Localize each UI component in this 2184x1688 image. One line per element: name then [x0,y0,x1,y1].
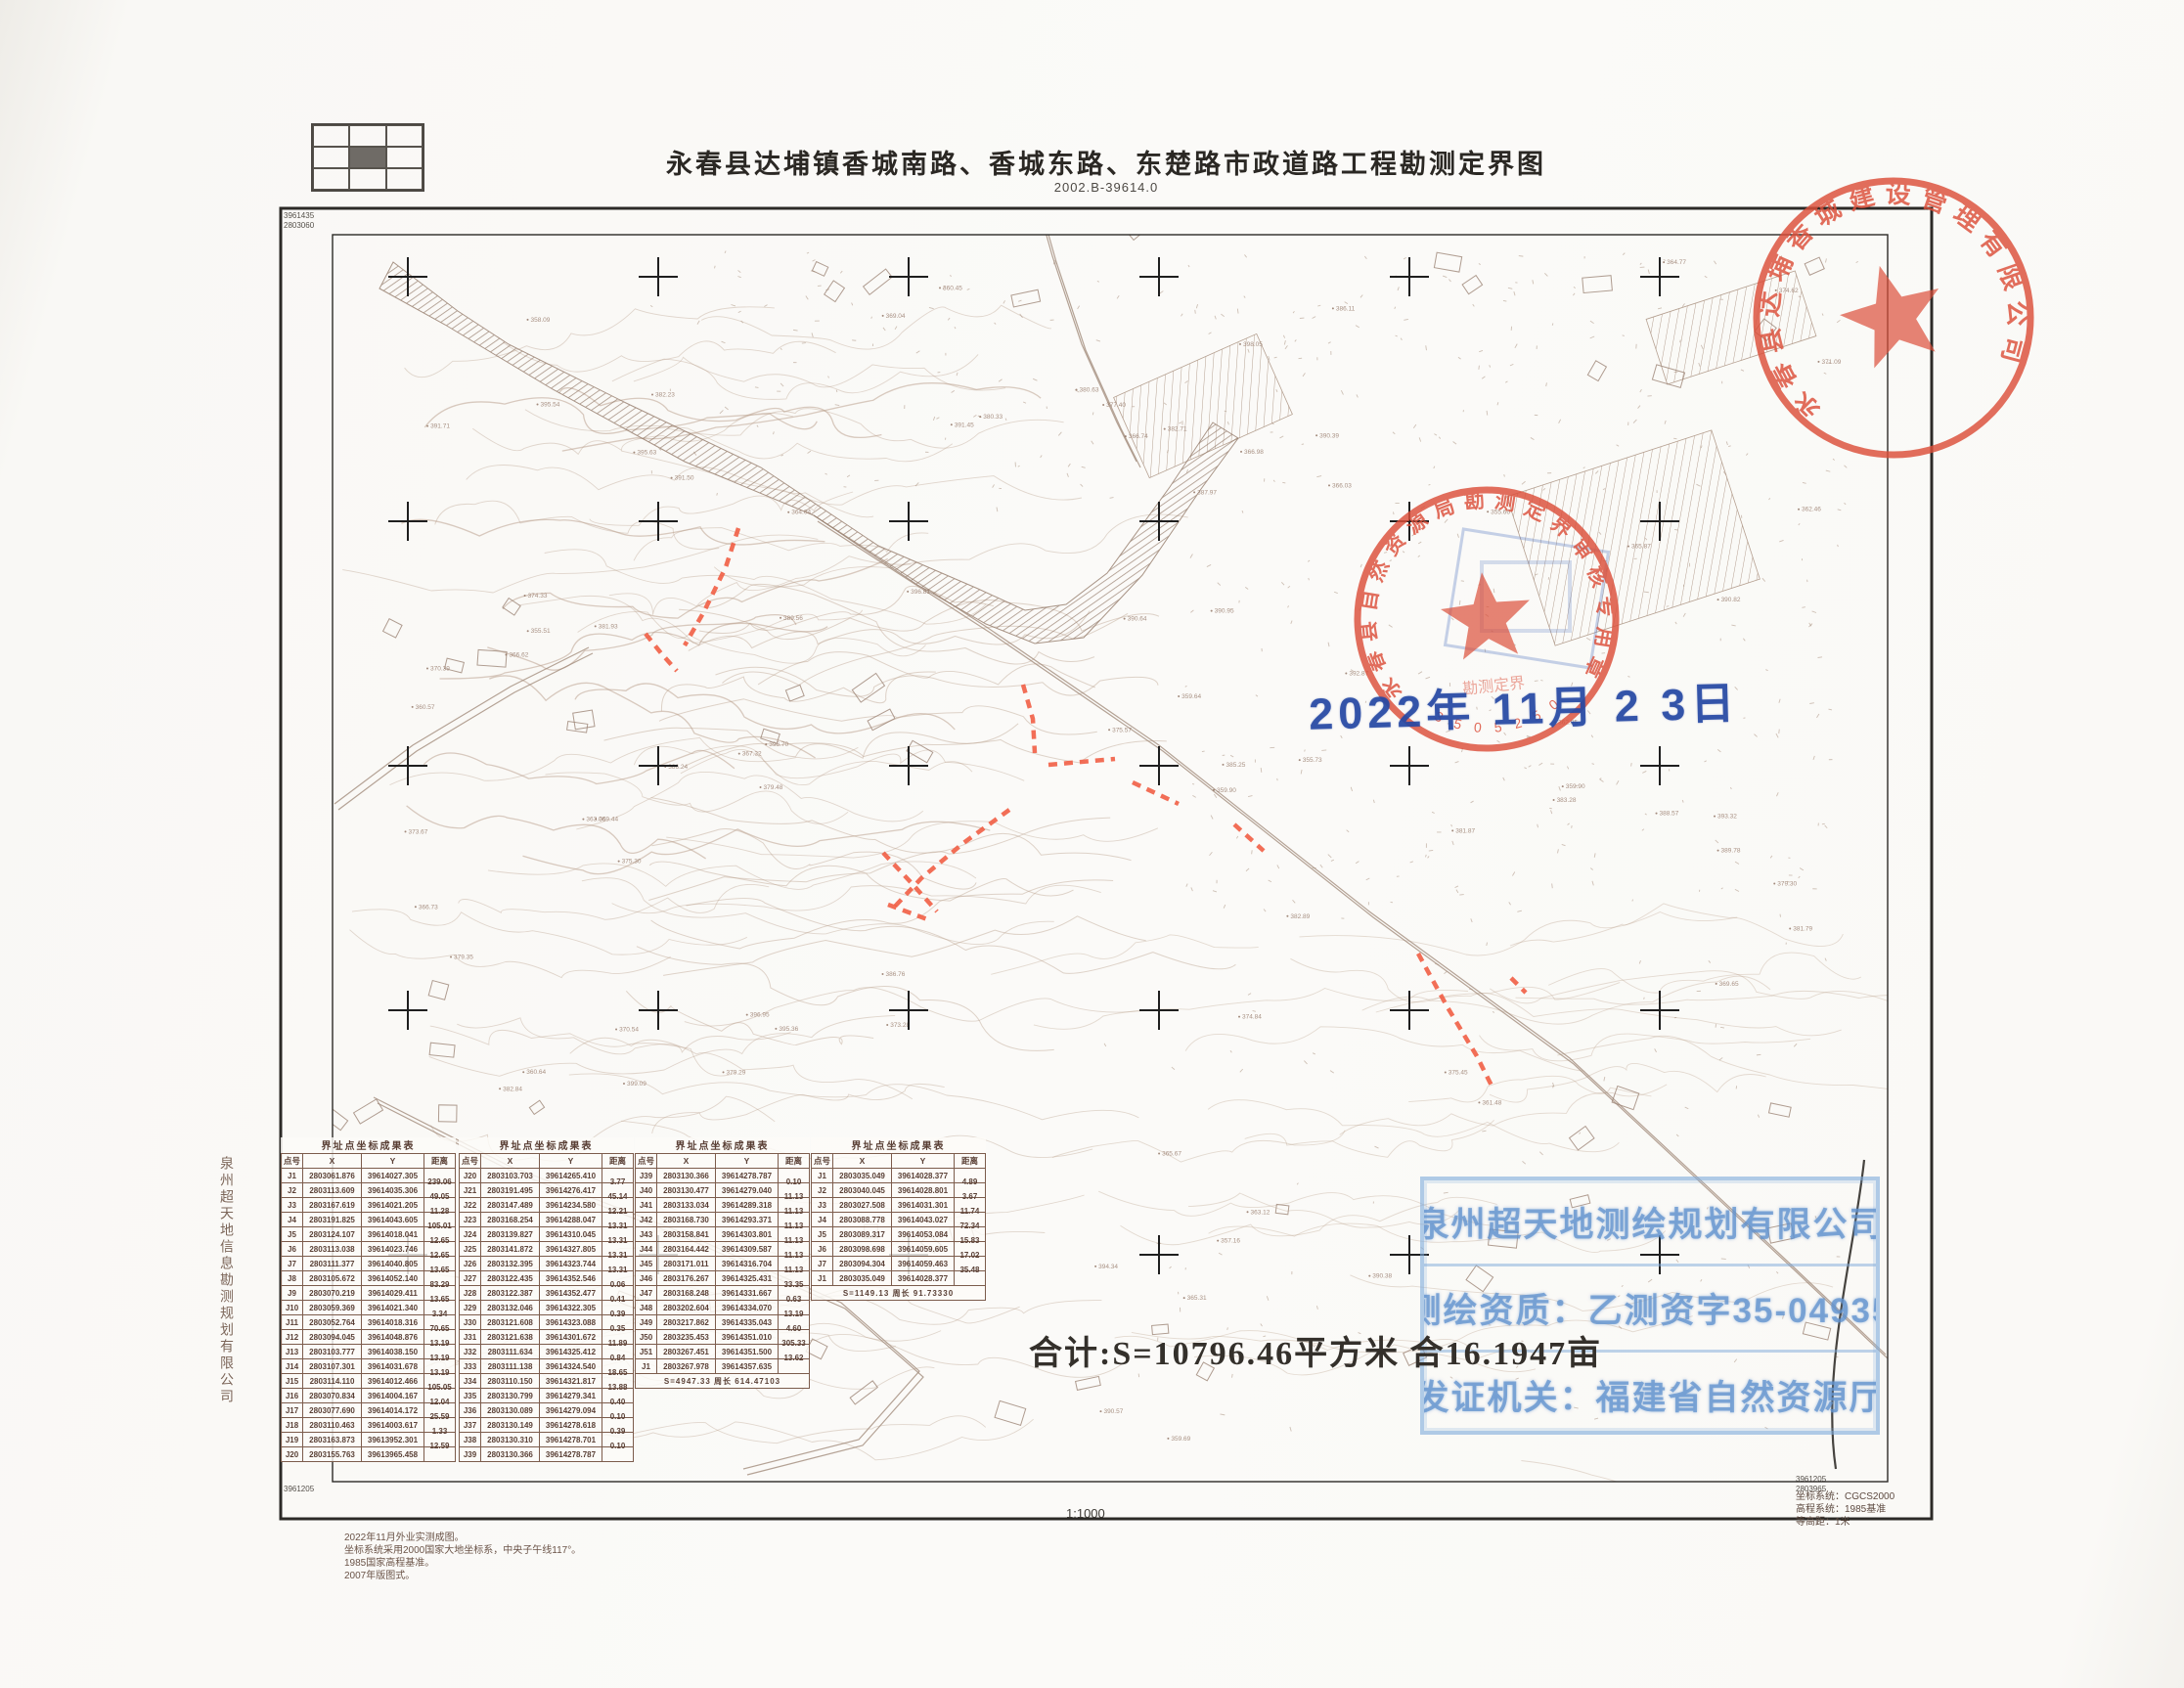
distance: 12.04 [424,1395,456,1409]
area-summary: 合计:S=10796.46平方米 合16.1947亩 [1029,1326,1602,1374]
y-coordinate: 39614288.047 [540,1213,602,1227]
x-coordinate: 2803163.873 [303,1433,362,1447]
y-coordinate: 39614279.094 [540,1403,602,1418]
y-coordinate: 39614303.801 [716,1227,779,1242]
y-coordinate: 39614331.667 [716,1286,779,1301]
column-header: X [657,1154,716,1169]
point-id: J3 [282,1198,303,1213]
distance: 11.13 [779,1233,810,1248]
x-coordinate: 2803124.107 [303,1227,362,1242]
distance: 13.31 [602,1219,634,1233]
point-id: J29 [460,1301,481,1315]
y-coordinate: 39614003.617 [362,1418,424,1433]
table-row: J12803035.04939614028.3774.89 [812,1169,986,1183]
coordinate-table-block: 界址点坐标成果表点号XY距离J202803103.70339614265.410… [459,1137,634,1462]
point-id: J22 [460,1198,481,1213]
y-coordinate: 39614059.605 [892,1242,955,1257]
distance: 11.13 [779,1204,810,1219]
distance: 17.02 [955,1248,986,1263]
y-coordinate: 39614351.500 [716,1345,779,1359]
column-header: 距离 [424,1154,456,1169]
y-coordinate: 39614276.417 [540,1183,602,1198]
x-coordinate: 2803139.827 [481,1227,540,1242]
x-coordinate: 2803121.638 [481,1330,540,1345]
x-coordinate: 2803111.377 [303,1257,362,1271]
point-id: J35 [460,1389,481,1403]
point-id: J41 [636,1198,657,1213]
y-coordinate: 39614327.805 [540,1242,602,1257]
y-coordinate: 39614023.746 [362,1242,424,1257]
survey-company-vertical: 泉州超天地信息勘测规划有限公司 [217,1156,237,1405]
y-coordinate: 39614323.088 [540,1315,602,1330]
distance: 4.89 [955,1175,986,1189]
y-coordinate: 39614279.040 [716,1183,779,1198]
distance [779,1365,810,1380]
point-id: J47 [636,1286,657,1301]
x-coordinate: 2803171.011 [657,1257,716,1271]
table-title: 界址点坐标成果表 [635,1137,810,1152]
point-id: J4 [282,1213,303,1227]
x-coordinate: 2803061.876 [303,1169,362,1183]
y-coordinate: 39613952.301 [362,1433,424,1447]
distance: 3.67 [955,1189,986,1204]
point-id: J14 [282,1359,303,1374]
distance: 13.31 [602,1233,634,1248]
x-coordinate: 2803130.366 [481,1447,540,1462]
y-coordinate: 39614301.672 [540,1330,602,1345]
column-header: Y [540,1154,602,1169]
distance [955,1277,986,1292]
distance: 0.39 [602,1307,634,1321]
y-coordinate: 39614043.605 [362,1213,424,1227]
y-coordinate: 39614316.704 [716,1257,779,1271]
point-id: J43 [636,1227,657,1242]
column-header: 点号 [282,1154,303,1169]
reference-system-notes: 坐标系统：CGCS2000 高程系统：1985基准 等高距：1米 [1796,1490,1894,1529]
x-coordinate: 2803111.138 [481,1359,540,1374]
point-id: J20 [282,1447,303,1462]
x-coordinate: 2803098.698 [833,1242,892,1257]
distance: 0.63 [779,1292,810,1307]
point-id: J42 [636,1213,657,1227]
point-id: J24 [460,1227,481,1242]
y-coordinate: 39614040.805 [362,1257,424,1271]
table-row: J392803130.36639614278.7870.10 [636,1169,810,1183]
y-coordinate: 39614021.340 [362,1301,424,1315]
distance: 239.06 [424,1175,456,1189]
point-id: J46 [636,1271,657,1286]
x-coordinate: 2803052.764 [303,1315,362,1330]
distance: 0.41 [602,1292,634,1307]
distance: 0.10 [602,1439,634,1453]
y-coordinate: 39614038.150 [362,1345,424,1359]
distance: 12.65 [424,1248,456,1263]
point-id: J27 [460,1271,481,1286]
y-coordinate: 39614035.306 [362,1183,424,1198]
y-coordinate: 39614014.172 [362,1403,424,1418]
x-coordinate: 2803103.777 [303,1345,362,1359]
point-id: J16 [282,1389,303,1403]
x-coordinate: 2803113.038 [303,1242,362,1257]
y-coordinate: 39614028.377 [892,1271,955,1286]
distance: 3.34 [424,1307,456,1321]
y-coordinate: 39614322.305 [540,1301,602,1315]
table-header-row: 点号XY距离 [282,1154,456,1169]
y-coordinate: 39614321.817 [540,1374,602,1389]
column-header: 距离 [955,1154,986,1169]
x-coordinate: 2803130.310 [481,1433,540,1447]
scanned-sheet: 375.45395.54394.34359.90386.11366.03382.… [0,0,2184,1688]
x-coordinate: 2803122.387 [481,1286,540,1301]
point-id: J5 [282,1227,303,1242]
y-coordinate: 39614053.084 [892,1227,955,1242]
point-id: J17 [282,1403,303,1418]
x-coordinate: 2803132.395 [481,1257,540,1271]
point-id: J2 [282,1183,303,1198]
y-coordinate: 39614031.301 [892,1198,955,1213]
column-header: X [481,1154,540,1169]
y-coordinate: 39614052.140 [362,1271,424,1286]
y-coordinate: 39614309.587 [716,1242,779,1257]
distance: 11.13 [779,1263,810,1277]
point-id: J15 [282,1374,303,1389]
distance: 0.40 [602,1395,634,1409]
distance: 13.19 [424,1365,456,1380]
x-coordinate: 2803217.862 [657,1315,716,1330]
x-coordinate: 2803105.672 [303,1271,362,1286]
distance: 15.83 [955,1233,986,1248]
distance: 25.59 [424,1409,456,1424]
x-coordinate: 2803235.453 [657,1330,716,1345]
distance: 0.39 [602,1424,634,1439]
map-scale: 1:1000 [1066,1506,1105,1521]
x-coordinate: 2803027.508 [833,1198,892,1213]
y-coordinate: 39614031.678 [362,1359,424,1374]
y-coordinate: 39614234.580 [540,1198,602,1213]
blue-date-stamp: 2022年 11月 2 3日 [1308,667,1740,742]
point-id: J50 [636,1330,657,1345]
x-coordinate: 2803191.495 [481,1183,540,1198]
x-coordinate: 2803168.248 [657,1286,716,1301]
y-coordinate: 39614278.701 [540,1433,602,1447]
y-coordinate: 39614324.540 [540,1359,602,1374]
distance: 70.65 [424,1321,456,1336]
point-id: J31 [460,1330,481,1345]
point-id: J48 [636,1301,657,1315]
column-header: X [303,1154,362,1169]
qualification-company: 泉州超天地测绘规划有限公司 [1424,1180,1876,1266]
distance: 12.65 [424,1233,456,1248]
y-coordinate: 39614048.876 [362,1330,424,1345]
x-coordinate: 2803077.690 [303,1403,362,1418]
point-id: J28 [460,1286,481,1301]
distance: 83.29 [424,1277,456,1292]
y-coordinate: 39614028.377 [892,1169,955,1183]
y-coordinate: 39614012.466 [362,1374,424,1389]
distance: 105.01 [424,1219,456,1233]
distance: 49.05 [424,1189,456,1204]
point-id: J6 [282,1242,303,1257]
x-coordinate: 2803114.110 [303,1374,362,1389]
point-id: J19 [282,1433,303,1447]
y-coordinate: 39614323.744 [540,1257,602,1271]
x-coordinate: 2803167.619 [303,1198,362,1213]
y-coordinate: 39614279.341 [540,1389,602,1403]
distance: 13.62 [779,1351,810,1365]
y-coordinate: 39614351.010 [716,1330,779,1345]
distance: 0.06 [602,1277,634,1292]
point-id: J49 [636,1315,657,1330]
y-coordinate: 39614043.027 [892,1213,955,1227]
point-id: J18 [282,1418,303,1433]
y-coordinate: 39614004.167 [362,1389,424,1403]
x-coordinate: 2803191.825 [303,1213,362,1227]
y-coordinate: 39614352.477 [540,1286,602,1301]
y-coordinate: 39614059.463 [892,1257,955,1271]
distance: 72.34 [955,1219,986,1233]
point-id: J26 [460,1257,481,1271]
distance: 105.05 [424,1380,456,1395]
point-id: J3 [812,1198,833,1213]
x-coordinate: 2803155.763 [303,1447,362,1462]
x-coordinate: 2803103.703 [481,1169,540,1183]
distance: 13.88 [602,1380,634,1395]
distance: 11.13 [779,1248,810,1263]
distance: 3.77 [602,1175,634,1189]
point-id: J25 [460,1242,481,1257]
table-title: 界址点坐标成果表 [459,1137,634,1152]
x-coordinate: 2803094.304 [833,1257,892,1271]
distance: 13.19 [424,1336,456,1351]
distance: 11.13 [779,1189,810,1204]
x-coordinate: 2803130.149 [481,1418,540,1433]
y-coordinate: 39614334.070 [716,1301,779,1315]
x-coordinate: 2803164.442 [657,1242,716,1257]
x-coordinate: 2803070.834 [303,1389,362,1403]
surveyor-qualification-stamp: 泉州超天地测绘规划有限公司 测绘资质：乙测资字35-04935 发证机关：福建省… [1420,1177,1880,1435]
distance [424,1453,456,1468]
distance: 0.84 [602,1351,634,1365]
point-id: J39 [460,1447,481,1462]
x-coordinate: 2803110.150 [481,1374,540,1389]
distance: 1.33 [424,1424,456,1439]
x-coordinate: 2803132.046 [481,1301,540,1315]
distance: 0.35 [602,1321,634,1336]
y-coordinate: 39614028.801 [892,1183,955,1198]
point-id: J1 [636,1359,657,1374]
y-coordinate: 39614018.316 [362,1315,424,1330]
distance: 35.48 [955,1263,986,1277]
y-coordinate: 39614325.431 [716,1271,779,1286]
point-id: J34 [460,1374,481,1389]
point-id: J40 [636,1183,657,1198]
x-coordinate: 2803130.366 [657,1169,716,1183]
point-id: J4 [812,1213,833,1227]
x-coordinate: 2803130.477 [657,1183,716,1198]
point-id: J6 [812,1242,833,1257]
x-coordinate: 2803168.254 [481,1213,540,1227]
point-id: J36 [460,1403,481,1418]
x-coordinate: 2803147.489 [481,1198,540,1213]
x-coordinate: 2803176.267 [657,1271,716,1286]
y-coordinate: 39614278.618 [540,1418,602,1433]
distance: 13.31 [602,1248,634,1263]
x-coordinate: 2803141.872 [481,1242,540,1257]
distance: 13.19 [424,1351,456,1365]
table-title: 界址点坐标成果表 [811,1137,986,1152]
distance: 18.65 [602,1365,634,1380]
point-id: J5 [812,1227,833,1242]
x-coordinate: 2803094.045 [303,1330,362,1345]
y-coordinate: 39614278.787 [716,1169,779,1183]
point-id: J9 [282,1286,303,1301]
point-id: J21 [460,1183,481,1198]
coordinate-table-block: 界址点坐标成果表点号XY距离J12803061.87639614027.3052… [281,1137,456,1462]
distance: 11.74 [955,1204,986,1219]
distance: 11.13 [779,1219,810,1233]
x-coordinate: 2803035.049 [833,1271,892,1286]
column-header: 点号 [812,1154,833,1169]
distance: 305.33 [779,1336,810,1351]
distance: 11.28 [424,1204,456,1219]
y-coordinate: 39614335.043 [716,1315,779,1330]
x-coordinate: 2803035.049 [833,1169,892,1183]
point-id: J7 [812,1257,833,1271]
point-id: J37 [460,1418,481,1433]
x-coordinate: 2803088.778 [833,1213,892,1227]
point-id: J1 [282,1169,303,1183]
distance: 45.14 [602,1189,634,1204]
point-id: J30 [460,1315,481,1330]
y-coordinate: 39614293.371 [716,1213,779,1227]
point-id: J8 [282,1271,303,1286]
table-header-row: 点号XY距离 [460,1154,634,1169]
x-coordinate: 2803168.730 [657,1213,716,1227]
point-id: J51 [636,1345,657,1359]
table-row: J202803103.70339614265.4103.77 [460,1169,634,1183]
distance: 13.65 [424,1292,456,1307]
point-id: J13 [282,1345,303,1359]
distance: 12.21 [602,1204,634,1219]
distance: 13.65 [424,1263,456,1277]
x-coordinate: 2803202.604 [657,1301,716,1315]
point-id: J32 [460,1345,481,1359]
x-coordinate: 2803111.634 [481,1345,540,1359]
point-id: J23 [460,1213,481,1227]
distance: 33.35 [779,1277,810,1292]
distance: 0.10 [602,1409,634,1424]
x-coordinate: 2803059.369 [303,1301,362,1315]
distance: 4.60 [779,1321,810,1336]
map-notes: 2022年11月外业实测成图。 坐标系统采用2000国家大地坐标系，中央子午线1… [344,1532,581,1582]
column-header: 点号 [460,1154,481,1169]
point-id: J38 [460,1433,481,1447]
x-coordinate: 2803110.463 [303,1418,362,1433]
distance: 12.59 [424,1439,456,1453]
table-header-row: 点号XY距离 [636,1154,810,1169]
point-id: J1 [812,1271,833,1286]
table-title: 界址点坐标成果表 [281,1137,456,1152]
x-coordinate: 2803121.608 [481,1315,540,1330]
distance: 11.89 [602,1336,634,1351]
point-id: J11 [282,1315,303,1330]
x-coordinate: 2803122.435 [481,1271,540,1286]
point-id: J1 [812,1169,833,1183]
distance: 13.19 [779,1307,810,1321]
y-coordinate: 39614310.045 [540,1227,602,1242]
column-header: 点号 [636,1154,657,1169]
y-coordinate: 39614029.411 [362,1286,424,1301]
column-header: Y [892,1154,955,1169]
y-coordinate: 39614325.412 [540,1345,602,1359]
coordinate-table-block: 界址点坐标成果表点号XY距离J392803130.36639614278.787… [635,1137,810,1389]
x-coordinate: 2803113.609 [303,1183,362,1198]
x-coordinate: 2803070.219 [303,1286,362,1301]
column-header: Y [716,1154,779,1169]
column-header: X [833,1154,892,1169]
coordinate-table-block: 界址点坐标成果表点号XY距离J12803035.04939614028.3774… [811,1137,986,1301]
point-id: J44 [636,1242,657,1257]
x-coordinate: 2803133.034 [657,1198,716,1213]
point-id: J33 [460,1359,481,1374]
x-coordinate: 2803040.045 [833,1183,892,1198]
x-coordinate: 2803130.799 [481,1389,540,1403]
column-header: 距离 [779,1154,810,1169]
y-coordinate: 39614357.635 [716,1359,779,1374]
point-id: J10 [282,1301,303,1315]
point-id: J39 [636,1169,657,1183]
point-id: J20 [460,1169,481,1183]
x-coordinate: 2803107.301 [303,1359,362,1374]
y-coordinate: 39614278.787 [540,1447,602,1462]
y-coordinate: 39613965.458 [362,1447,424,1462]
y-coordinate: 39614027.305 [362,1169,424,1183]
column-header: Y [362,1154,424,1169]
point-id: J45 [636,1257,657,1271]
y-coordinate: 39614021.205 [362,1198,424,1213]
distance [602,1453,634,1468]
y-coordinate: 39614289.318 [716,1198,779,1213]
x-coordinate: 2803267.978 [657,1359,716,1374]
x-coordinate: 2803158.841 [657,1227,716,1242]
y-coordinate: 39614352.546 [540,1271,602,1286]
column-header: 距离 [602,1154,634,1169]
point-id: J7 [282,1257,303,1271]
table-header-row: 点号XY距离 [812,1154,986,1169]
distance: 13.31 [602,1263,634,1277]
x-coordinate: 2803089.317 [833,1227,892,1242]
point-id: J12 [282,1330,303,1345]
table-row: J12803061.87639614027.305239.06 [282,1169,456,1183]
y-coordinate: 39614018.041 [362,1227,424,1242]
point-id: J2 [812,1183,833,1198]
y-coordinate: 39614265.410 [540,1169,602,1183]
distance: 0.10 [779,1175,810,1189]
x-coordinate: 2803130.089 [481,1403,540,1418]
x-coordinate: 2803267.451 [657,1345,716,1359]
